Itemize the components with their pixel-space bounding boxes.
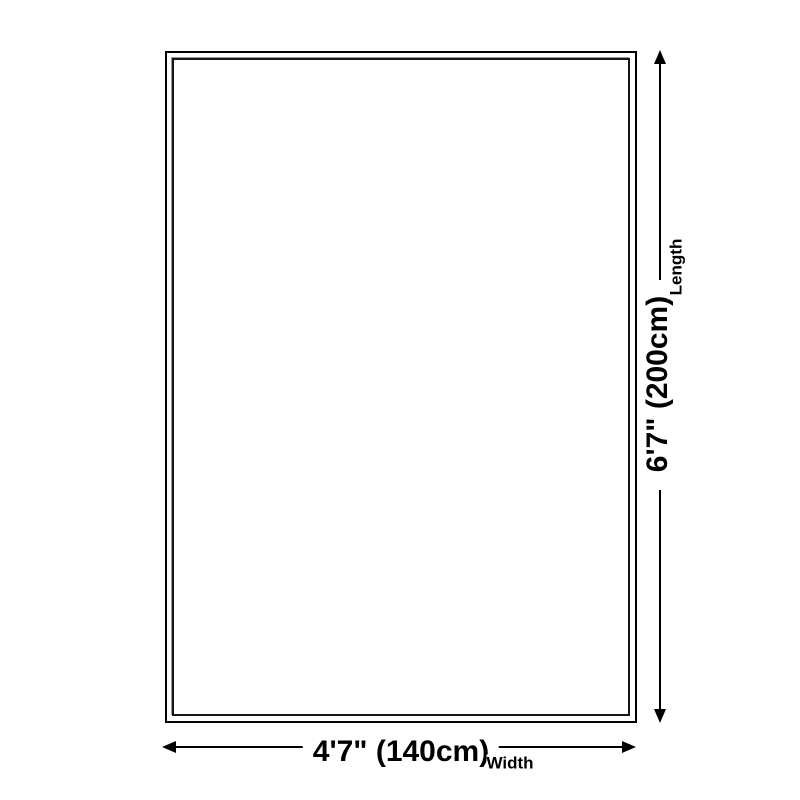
arrow-right-icon	[622, 741, 636, 753]
width-dimension-line-left	[175, 746, 307, 748]
length-caption-label: Length	[668, 235, 685, 300]
length-dimension-line-upper	[659, 60, 661, 280]
width-caption-label: Width	[486, 755, 533, 772]
rug-inner-border	[172, 58, 630, 716]
arrow-left-icon	[162, 741, 176, 753]
rug-outline	[165, 51, 637, 723]
width-dimension-line-right	[493, 746, 624, 748]
length-dimension-line-lower	[659, 490, 661, 714]
width-value-label: 4'7" (140cm)	[303, 737, 499, 767]
arrow-down-icon	[654, 709, 666, 723]
size-diagram: 6'7" (200cm) Length 4'7" (140cm) Width	[0, 0, 800, 800]
arrow-up-icon	[654, 50, 666, 64]
length-value-label: 6'7" (200cm)	[643, 290, 673, 478]
